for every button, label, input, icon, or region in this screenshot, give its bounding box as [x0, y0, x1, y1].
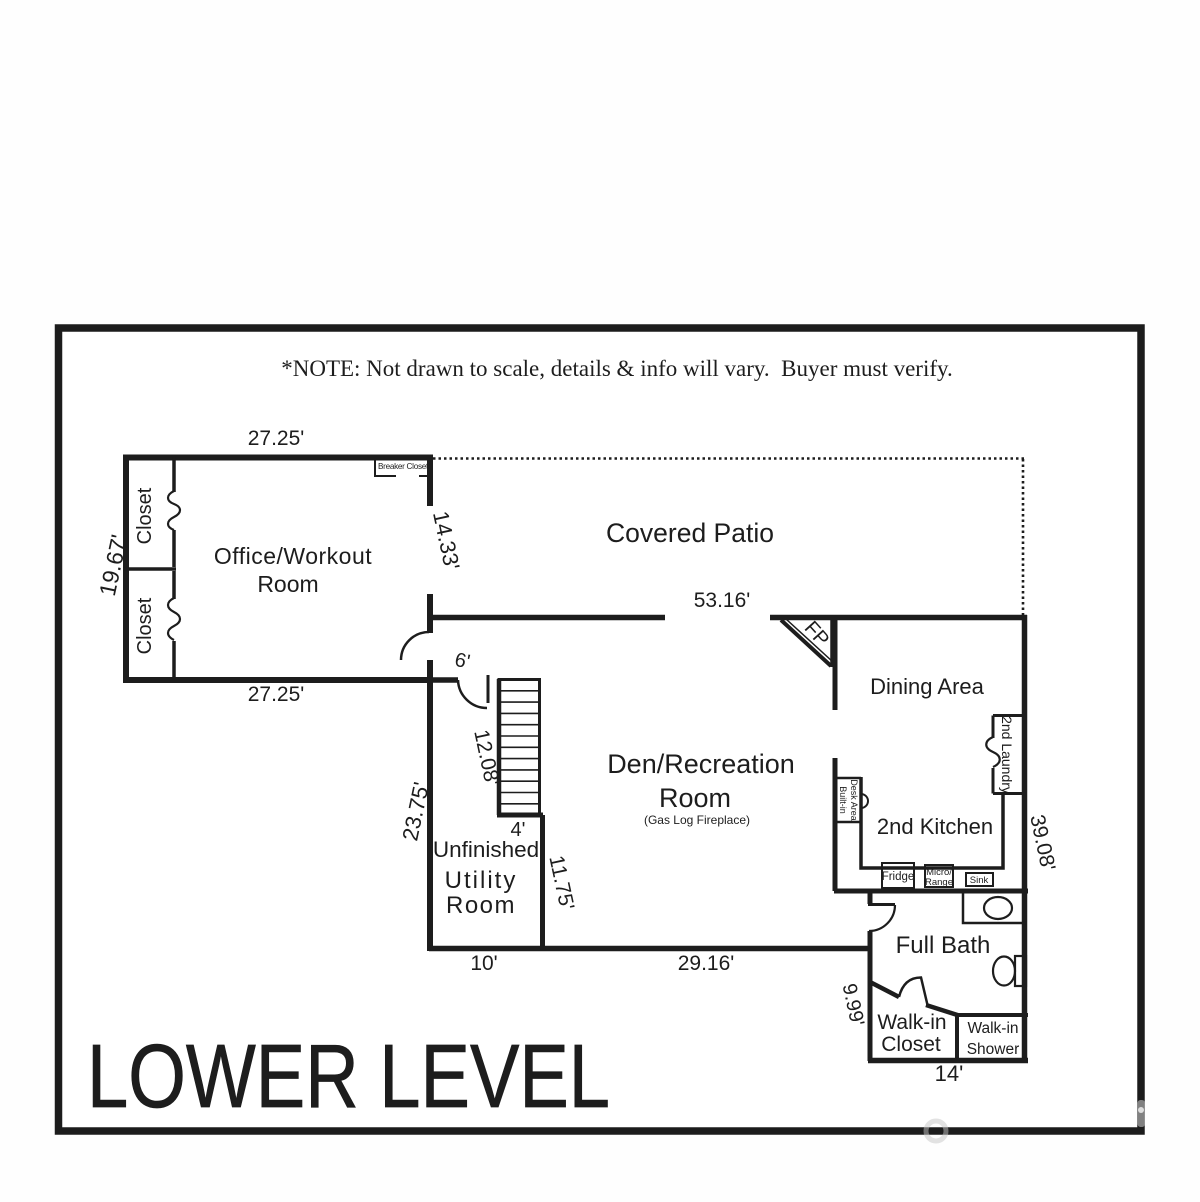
svg-text:Den/Recreation: Den/Recreation: [607, 749, 795, 779]
svg-text:Range: Range: [925, 877, 953, 888]
svg-text:Full Bath: Full Bath: [896, 932, 991, 959]
svg-text:Room: Room: [659, 783, 731, 813]
svg-text:Walk-in: Walk-in: [967, 1020, 1018, 1037]
svg-text:29.16': 29.16': [678, 952, 735, 975]
svg-text:Closet: Closet: [134, 487, 156, 544]
svg-text:53.16': 53.16': [694, 589, 751, 612]
svg-text:Closet: Closet: [881, 1033, 941, 1056]
svg-text:27.25': 27.25': [248, 427, 305, 450]
svg-text:*NOTE: Not drawn to scale, det: *NOTE: Not drawn to scale, details & inf…: [281, 356, 953, 381]
svg-text:Sink: Sink: [970, 875, 989, 886]
svg-text:Desk Area: Desk Area: [849, 779, 859, 821]
svg-text:Utility: Utility: [445, 867, 518, 894]
svg-text:Walk-in: Walk-in: [877, 1011, 946, 1034]
svg-text:Covered Patio: Covered Patio: [606, 518, 774, 548]
svg-text:Closet: Closet: [134, 597, 156, 654]
svg-text:Room: Room: [446, 892, 516, 919]
svg-text:Unfinished: Unfinished: [433, 837, 539, 862]
svg-text:Shower: Shower: [967, 1041, 1020, 1058]
svg-text:Office/Workout: Office/Workout: [214, 543, 372, 569]
svg-text:Breaker Closet: Breaker Closet: [378, 462, 429, 471]
svg-text:Built-in: Built-in: [838, 786, 848, 814]
svg-text:Fridge: Fridge: [882, 871, 915, 883]
svg-text:10': 10': [470, 952, 497, 975]
svg-text:(Gas Log Fireplace): (Gas Log Fireplace): [644, 813, 750, 827]
svg-text:Dining Area: Dining Area: [870, 674, 985, 699]
svg-text:2nd Laundry: 2nd Laundry: [999, 716, 1015, 794]
svg-text:LOWER LEVEL: LOWER LEVEL: [87, 1027, 610, 1127]
svg-text:27.25': 27.25': [248, 683, 305, 706]
svg-text:14': 14': [935, 1061, 964, 1086]
svg-text:Room: Room: [257, 571, 318, 597]
svg-text:2nd Kitchen: 2nd Kitchen: [877, 814, 993, 839]
